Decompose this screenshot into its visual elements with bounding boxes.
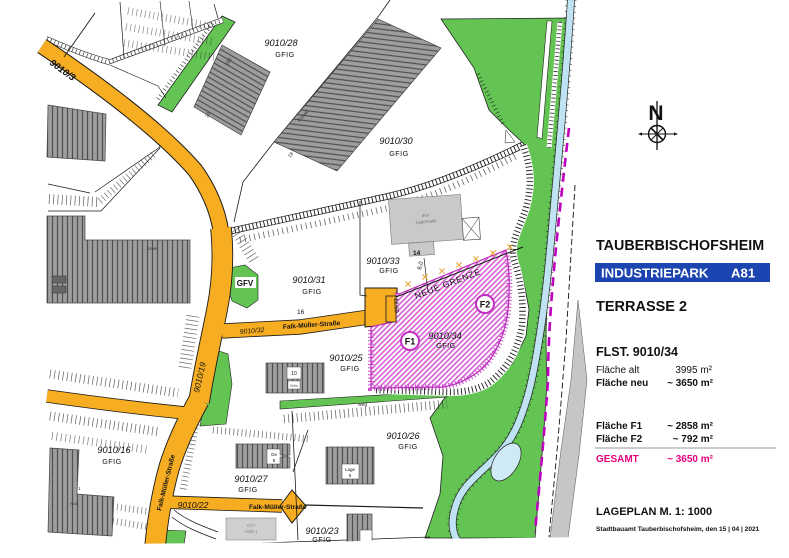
- svg-text:GESAMT: GESAMT: [596, 454, 639, 465]
- svg-text:Fläche F2: Fläche F2: [596, 434, 643, 445]
- svg-text:INDUSTRIEPARK: INDUSTRIEPARK: [601, 266, 709, 281]
- svg-text:14: 14: [413, 250, 421, 257]
- svg-text:12,90: 12,90: [392, 298, 399, 314]
- svg-text:Ge: Ge: [271, 452, 278, 457]
- svg-text:3995 m²: 3995 m²: [675, 365, 712, 376]
- svg-text:Stadtbauamt Tauberbischofsheim: Stadtbauamt Tauberbischofsheim, den 15 |…: [596, 526, 760, 533]
- svg-text:TERRASSE 2: TERRASSE 2: [596, 299, 687, 315]
- svg-text:GFIG: GFIG: [436, 341, 456, 350]
- svg-text:16: 16: [297, 309, 305, 316]
- svg-text:GFIG: GFIG: [312, 535, 332, 544]
- svg-text:Uwe: Uwe: [148, 246, 157, 251]
- svg-text:GFV: GFV: [237, 279, 254, 288]
- svg-text:GFIG: GFIG: [340, 364, 360, 373]
- svg-text:9010/28: 9010/28: [264, 38, 298, 48]
- svg-text:FLST. 9010/34: FLST. 9010/34: [596, 345, 678, 359]
- svg-text:Aus: Aus: [70, 501, 79, 506]
- svg-text:F2: F2: [480, 300, 491, 310]
- svg-text:9010/27: 9010/27: [234, 474, 268, 484]
- svg-text:GFIG: GFIG: [275, 50, 295, 59]
- svg-text:Falk-Müller-Straße: Falk-Müller-Straße: [249, 504, 307, 511]
- svg-text:LAGEPLAN M. 1: 1000: LAGEPLAN M. 1: 1000: [596, 506, 712, 518]
- svg-text:9010/30: 9010/30: [379, 136, 413, 146]
- svg-text:A81: A81: [731, 266, 755, 281]
- svg-text:F1: F1: [405, 337, 416, 347]
- svg-text:~ 3650 m²: ~ 3650 m²: [667, 378, 714, 389]
- svg-text:9010/25: 9010/25: [329, 353, 363, 363]
- svg-text:GFIG: GFIG: [102, 457, 122, 466]
- svg-text:GVT: GVT: [247, 523, 256, 528]
- svg-text:Fläche F1: Fläche F1: [596, 421, 643, 432]
- svg-text:~ 2858 m²: ~ 2858 m²: [667, 421, 714, 432]
- svg-text:Whs: Whs: [290, 383, 298, 388]
- svg-text:Fläche neu: Fläche neu: [596, 378, 648, 389]
- svg-text:Lage: Lage: [345, 467, 356, 472]
- svg-text:9010/34: 9010/34: [428, 331, 461, 341]
- svg-text:10: 10: [291, 371, 297, 377]
- svg-text:weg: weg: [358, 402, 367, 408]
- svg-text:Halle 1: Halle 1: [244, 529, 258, 534]
- svg-text:TAUBERBISCHOFSHEIM: TAUBERBISCHOFSHEIM: [596, 238, 764, 254]
- svg-text:GFIG: GFIG: [398, 442, 418, 451]
- svg-text:9010/22: 9010/22: [178, 500, 209, 510]
- svg-text:9010/16: 9010/16: [97, 445, 131, 455]
- svg-text:GFIG: GFIG: [389, 149, 409, 158]
- svg-text:9010/33: 9010/33: [366, 256, 400, 266]
- svg-text:GFIG: GFIG: [238, 485, 258, 494]
- svg-text:GFIG: GFIG: [302, 287, 322, 296]
- svg-text:GFIG: GFIG: [379, 266, 399, 275]
- svg-text:Fläche alt: Fläche alt: [596, 365, 640, 376]
- svg-text:9010/26: 9010/26: [386, 431, 420, 441]
- svg-text:9010/31: 9010/31: [292, 275, 325, 285]
- svg-text:~ 3650 m²: ~ 3650 m²: [667, 454, 714, 465]
- svg-text:~ 792 m²: ~ 792 m²: [673, 434, 714, 445]
- svg-text:IKH: IKH: [422, 213, 430, 219]
- svg-text:N: N: [648, 102, 663, 125]
